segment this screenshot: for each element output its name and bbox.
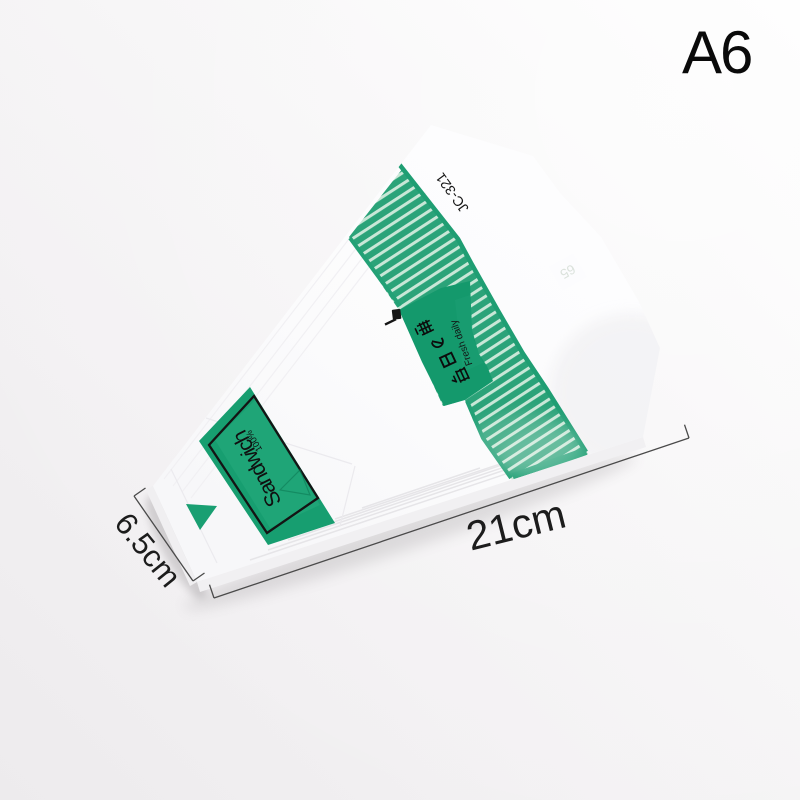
svg-text:A6: A6 bbox=[682, 19, 751, 86]
